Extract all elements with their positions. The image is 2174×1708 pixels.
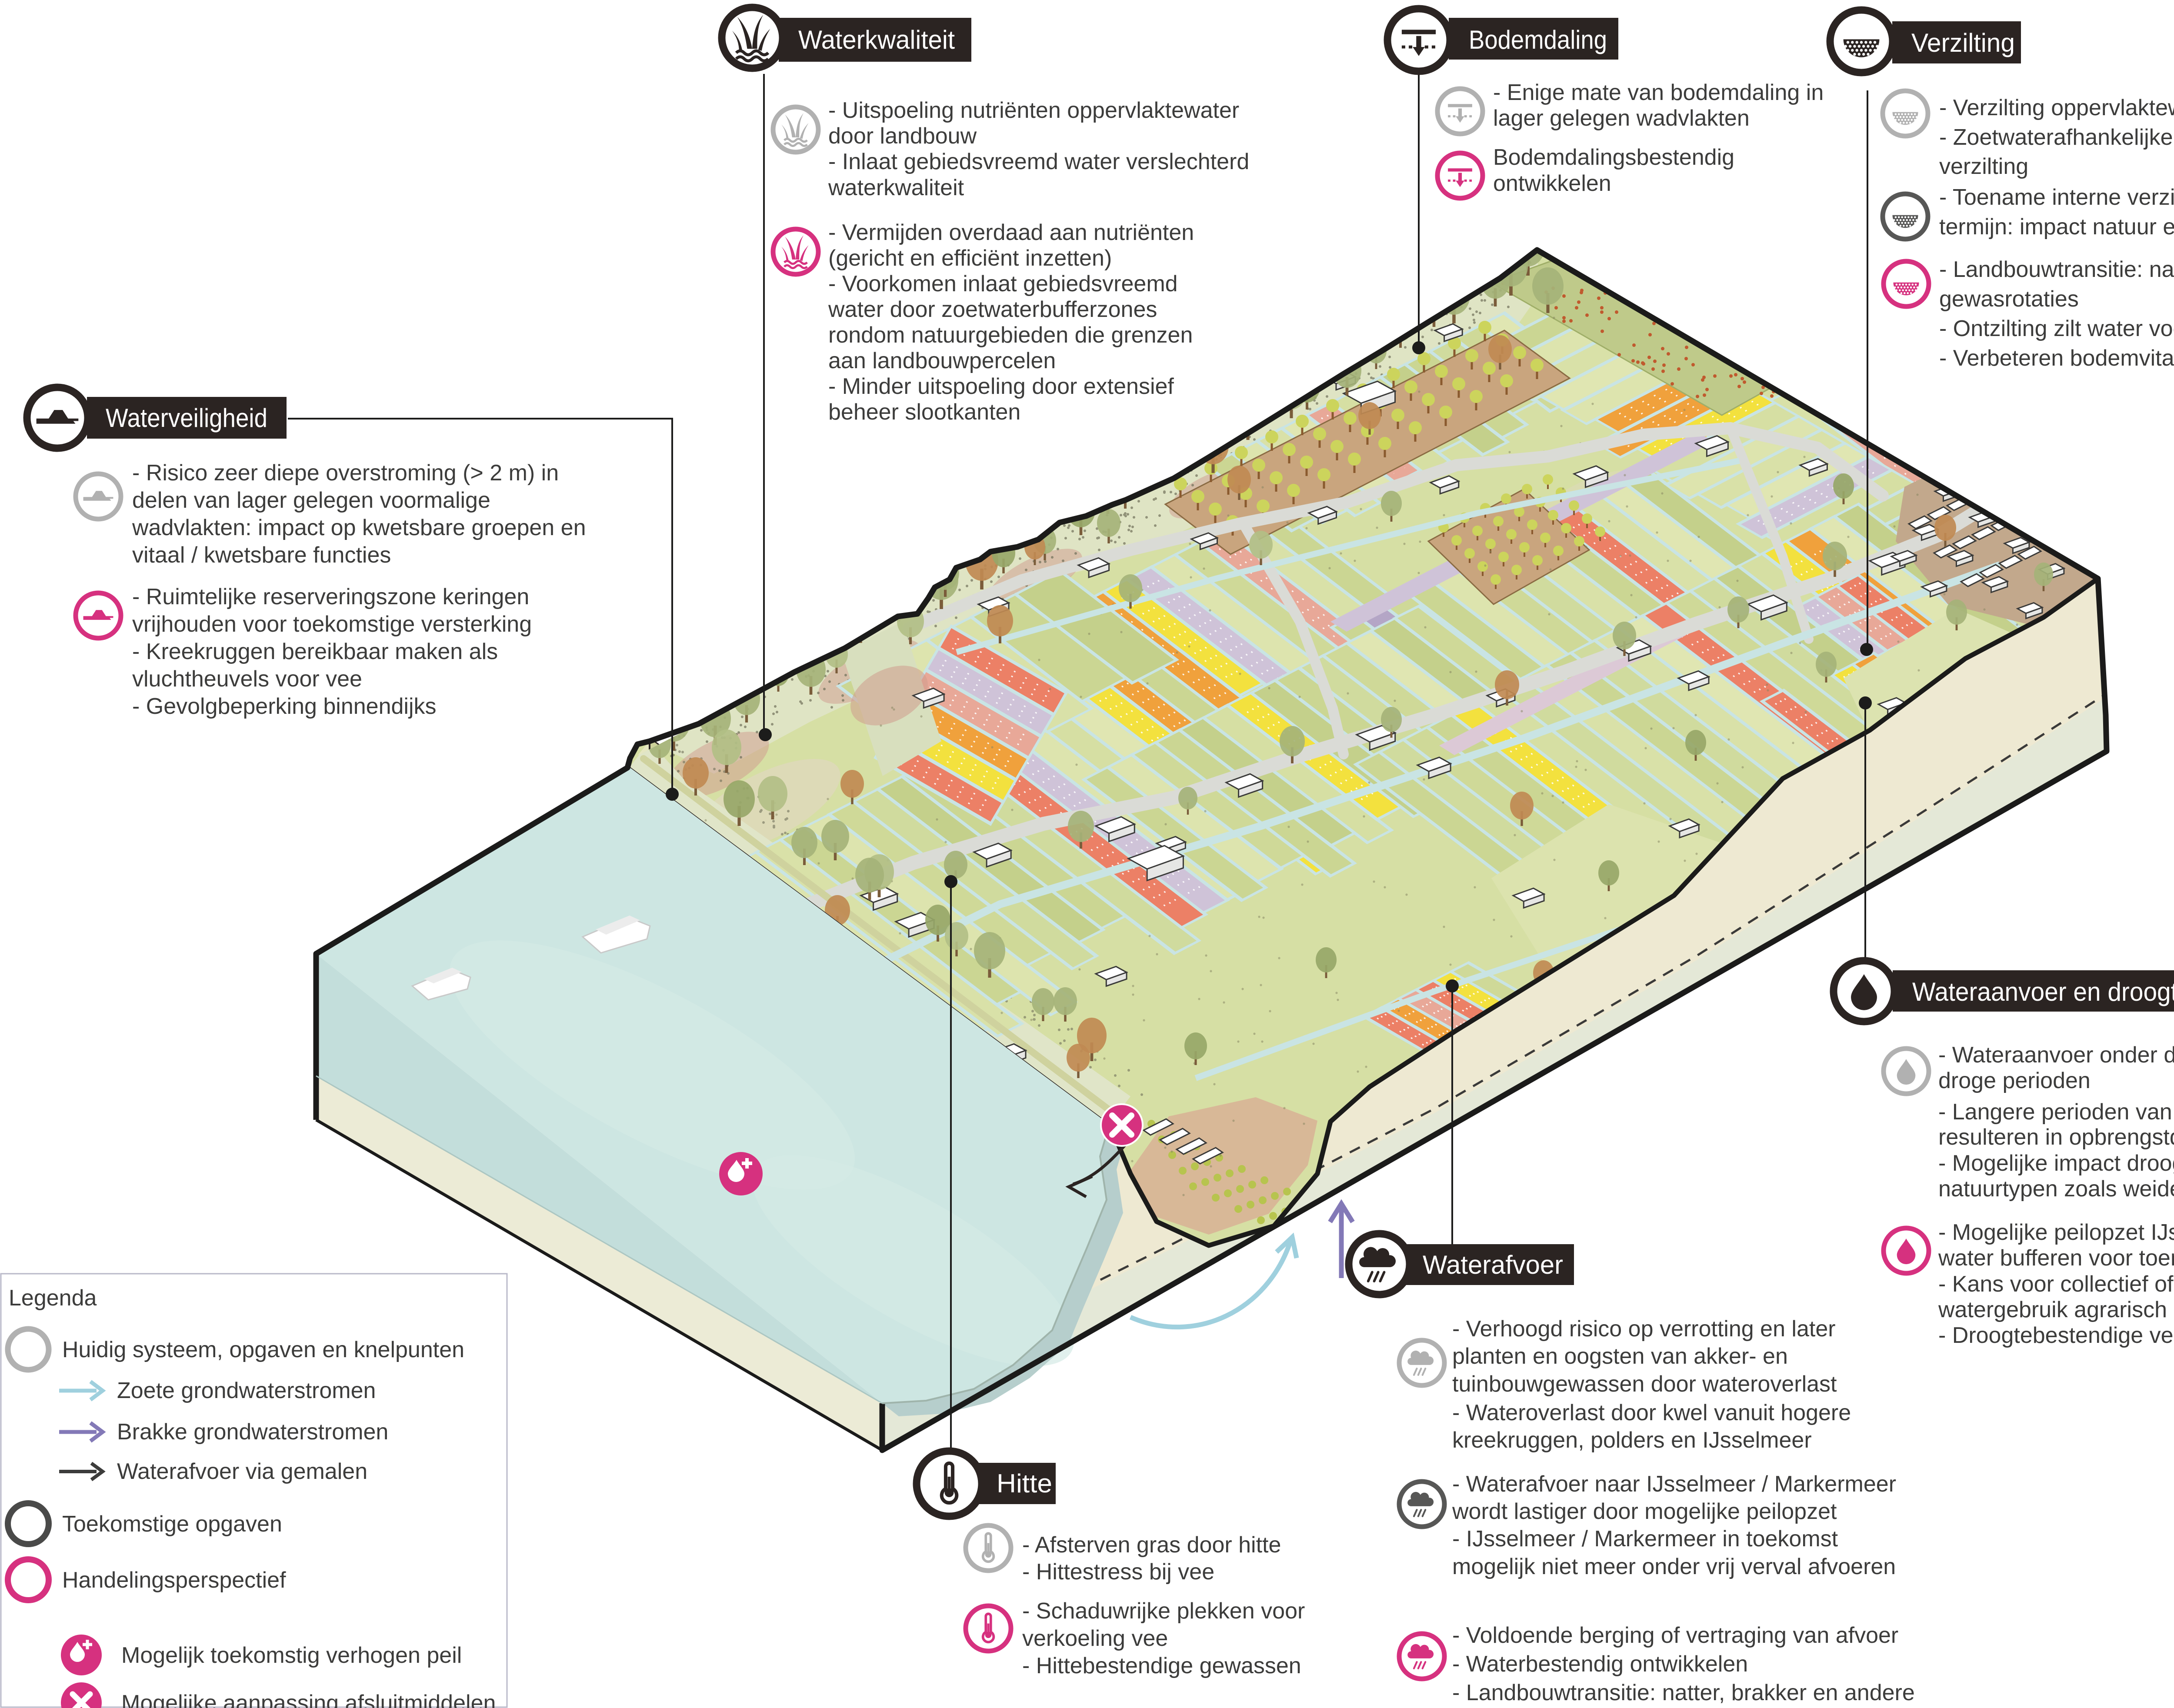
svg-text:Hitte: Hitte [997, 1469, 1052, 1498]
svg-text:- Kreekruggen bereikbaar maken: - Kreekruggen bereikbaar maken als [132, 639, 498, 664]
svg-text:- Enige mate van bodemdaling i: - Enige mate van bodemdaling in [1493, 80, 1824, 105]
svg-text:Waterafvoer via gemalen: Waterafvoer via gemalen [117, 1459, 367, 1484]
svg-text:Handelingsperspectief: Handelingsperspectief [62, 1568, 286, 1593]
svg-text:resulteren in opbrengstderving: resulteren in opbrengstderving/schade [1938, 1125, 2174, 1150]
svg-text:- Afsterven gras door hitte: - Afsterven gras door hitte [1022, 1532, 1281, 1558]
svg-text:- Wateraanvoer onder druk in: - Wateraanvoer onder druk in [1938, 1042, 2174, 1068]
svg-text:- Verhoogd risico op verrottin: - Verhoogd risico op verrotting en later [1452, 1316, 1836, 1342]
svg-text:- Verzilting oppervlaktewater:: - Verzilting oppervlaktewater: impact la… [1939, 95, 2174, 120]
svg-text:wadvlakten: impact op kwetsbar: wadvlakten: impact op kwetsbare groepen … [132, 515, 586, 540]
svg-text:- Hittestress bij vee: - Hittestress bij vee [1022, 1559, 1214, 1585]
svg-text:- Inlaat gebiedsvreemd water v: - Inlaat gebiedsvreemd water verslechter… [828, 149, 1249, 174]
svg-text:Wateraanvoer en droogte: Wateraanvoer en droogte [1912, 977, 2174, 1006]
svg-text:water door zoetwaterbufferzone: water door zoetwaterbufferzones [828, 297, 1157, 322]
svg-text:termijn: impact natuur en land: termijn: impact natuur en landbouw. [1939, 214, 2174, 240]
svg-text:- Toename interne verzilting l: - Toename interne verzilting lange [1939, 185, 2174, 210]
svg-text:- Schaduwrijke plekken voor: - Schaduwrijke plekken voor [1022, 1598, 1305, 1624]
svg-text:door landbouw: door landbouw [828, 123, 977, 149]
svg-text:natuurtypen zoals weidevogelgr: natuurtypen zoals weidevogelgrasland [1938, 1176, 2174, 1202]
svg-text:watergebruik agrarisch gebied: watergebruik agrarisch gebied [1938, 1297, 2174, 1322]
svg-text:Bodemdaling: Bodemdaling [1469, 25, 1607, 54]
svg-text:waterkwaliteit: waterkwaliteit [828, 175, 964, 200]
svg-text:- Ontzilting zilt water voor b: - Ontzilting zilt water voor beregening … [1939, 316, 2174, 341]
svg-text:- Voorkomen inlaat gebiedsvree: - Voorkomen inlaat gebiedsvreemd [828, 271, 1178, 296]
svg-text:Mogelijke aanpassing afsluitmi: Mogelijke aanpassing afsluitmiddelen [121, 1691, 496, 1708]
svg-text:gewasrotaties: gewasrotaties [1939, 286, 2079, 312]
svg-text:- Kans voor collectief of zelf: - Kans voor collectief of zelfvoorzienen… [1938, 1272, 2174, 1297]
svg-text:- Landbouwtransitie: natter, b: - Landbouwtransitie: natter, brakker en … [1452, 1680, 1915, 1705]
svg-text:- Langere perioden van droogte: - Langere perioden van droogte kan [1938, 1099, 2174, 1125]
svg-text:- Vermijden overdaad aan nutri: - Vermijden overdaad aan nutriënten [828, 220, 1194, 245]
svg-text:- Wateroverlast door kwel vanu: - Wateroverlast door kwel vanuit hogere [1452, 1400, 1851, 1425]
svg-text:- Droogtebestendige vegetatie: - Droogtebestendige vegetatie en gewasse… [1938, 1323, 2174, 1348]
svg-text:Huidig systeem, opgaven en kne: Huidig systeem, opgaven en knelpunten [62, 1337, 464, 1362]
svg-text:Legenda: Legenda [9, 1285, 97, 1311]
svg-text:Waterkwaliteit: Waterkwaliteit [798, 25, 955, 54]
svg-text:- Waterbestendig ontwikkelen: - Waterbestendig ontwikkelen [1452, 1651, 1748, 1677]
svg-text:mogelijk niet meer onder vrij: mogelijk niet meer onder vrij verval afv… [1452, 1554, 1896, 1579]
svg-text:droge perioden: droge perioden [1938, 1068, 2091, 1093]
svg-text:- Minder uitspoeling door exte: - Minder uitspoeling door extensief [828, 374, 1174, 399]
svg-text:planten en oogsten van akker-: planten en oogsten van akker- en [1452, 1344, 1788, 1369]
svg-text:delen van lager gelegen voorma: delen van lager gelegen voormalige [132, 488, 490, 513]
svg-text:- Mogelijke peilopzet IJsselme: - Mogelijke peilopzet IJsselmeer / Marke… [1938, 1220, 2174, 1245]
svg-text:Bodemdalingsbestendig: Bodemdalingsbestendig [1493, 145, 1734, 170]
svg-text:- Uitspoeling nutriënten opper: - Uitspoeling nutriënten oppervlaktewate… [828, 98, 1239, 123]
svg-text:- Ruimtelijke reserveringszone: - Ruimtelijke reserveringszone keringen [132, 584, 529, 609]
svg-text:- Mogelijke impact droogte op: - Mogelijke impact droogte op agrarische [1938, 1151, 2174, 1176]
svg-text:verzilting: verzilting [1939, 154, 2028, 179]
svg-text:- Gevolgbeperking binnendijks: - Gevolgbeperking binnendijks [132, 694, 437, 719]
svg-text:verkoeling vee: verkoeling vee [1022, 1626, 1168, 1651]
svg-text:wordt lastiger door mogelijke: wordt lastiger door mogelijke peilopzet [1452, 1499, 1837, 1524]
svg-text:- Voldoende berging of vertrag: - Voldoende berging of vertraging van af… [1452, 1623, 1898, 1648]
svg-text:- Verbeteren bodemvitaliteit: - Verbeteren bodemvitaliteit [1939, 346, 2174, 371]
svg-text:lager gelegen wadvlakten: lager gelegen wadvlakten [1493, 106, 1750, 131]
svg-text:- Landbouwtransitie: natter, b: - Landbouwtransitie: natter, brakker en … [1939, 257, 2174, 282]
svg-text:ontwikkelen: ontwikkelen [1493, 171, 1611, 196]
svg-text:vluchtheuvels voor vee: vluchtheuvels voor vee [132, 666, 362, 692]
svg-text:beheer slootkanten: beheer slootkanten [828, 400, 1020, 425]
svg-text:vitaal / kwetsbare functies: vitaal / kwetsbare functies [132, 543, 391, 568]
svg-text:Waterveiligheid: Waterveiligheid [106, 403, 267, 433]
svg-text:tuinbouwgewassen door waterove: tuinbouwgewassen door wateroverlast [1452, 1372, 1837, 1397]
svg-text:- Zoetwaterafhankelijke natuur: - Zoetwaterafhankelijke natuur gevoelig … [1939, 125, 2174, 150]
svg-text:Zoete grondwaterstromen: Zoete grondwaterstromen [117, 1378, 376, 1403]
svg-text:Toekomstige opgaven: Toekomstige opgaven [62, 1512, 282, 1537]
svg-text:- Hittebestendige gewassen: - Hittebestendige gewassen [1022, 1653, 1301, 1678]
svg-text:vrijhouden voor toekomstige ve: vrijhouden voor toekomstige versterking [132, 612, 532, 637]
svg-text:- Waterafvoer naar IJsselmeer: - Waterafvoer naar IJsselmeer / Markerme… [1452, 1472, 1896, 1497]
svg-text:(gericht en efficiënt inzetten: (gericht en efficiënt inzetten) [828, 246, 1112, 271]
svg-text:aan landbouwpercelen: aan landbouwpercelen [828, 348, 1056, 373]
svg-text:- Risico zeer diepe overstromi: - Risico zeer diepe overstroming (> 2 m)… [132, 460, 559, 486]
svg-text:kreekruggen, polders en IJssel: kreekruggen, polders en IJsselmeer [1452, 1428, 1812, 1453]
svg-text:rondom natuurgebieden die gren: rondom natuurgebieden die grenzen [828, 323, 1193, 348]
svg-text:water bufferen voor toenemende: water bufferen voor toenemende watervraa… [1938, 1245, 2174, 1271]
svg-text:- IJsselmeer / Markermeer in t: - IJsselmeer / Markermeer in toekomst [1452, 1526, 1838, 1552]
svg-text:Brakke grondwaterstromen: Brakke grondwaterstromen [117, 1419, 388, 1445]
svg-text:Mogelijk toekomstig verhogen p: Mogelijk toekomstig verhogen peil [121, 1643, 462, 1668]
svg-text:Verzilting: Verzilting [1911, 28, 2015, 57]
svg-text:Waterafvoer: Waterafvoer [1423, 1250, 1563, 1279]
